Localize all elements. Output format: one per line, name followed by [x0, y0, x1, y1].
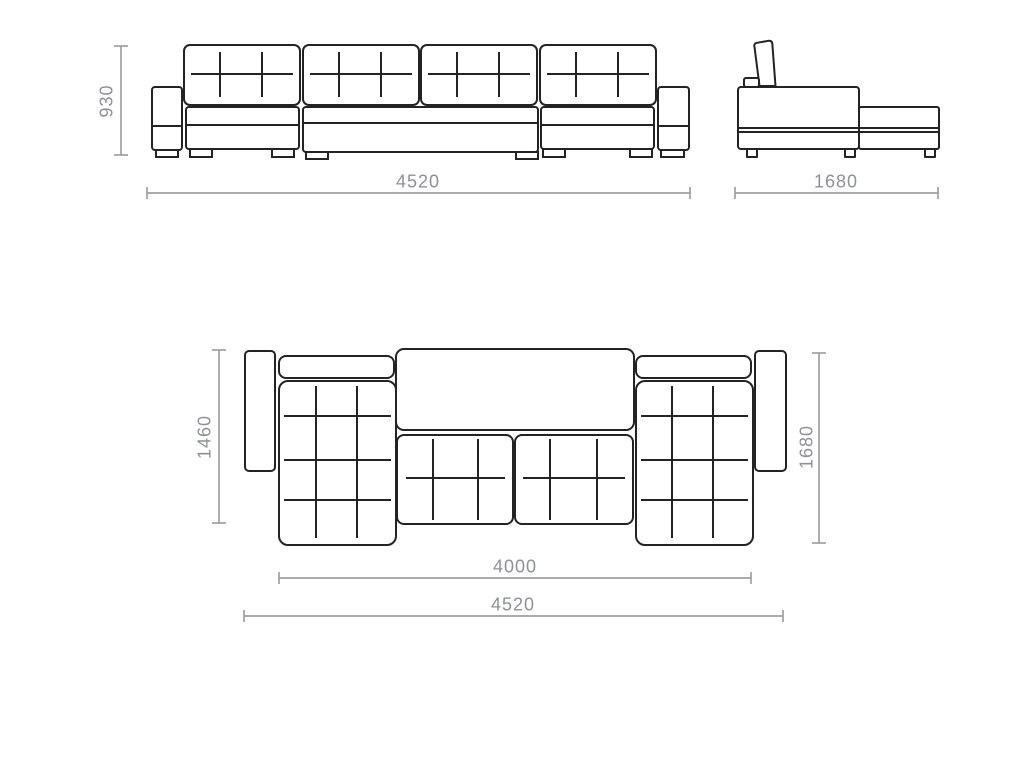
side-body	[738, 87, 859, 149]
front-height-label: 930	[97, 84, 118, 117]
plan-center-backrest	[396, 349, 634, 430]
front-seat-right	[541, 107, 654, 149]
sofa-dimension-diagram: 930 4520 1680 1460 1680 4000 4520	[0, 0, 1024, 768]
plan-depth-label: 1680	[797, 425, 818, 469]
drawing-svg	[0, 0, 1024, 768]
front-view	[152, 45, 689, 159]
front-seat-left	[186, 107, 299, 149]
plan-left-back-cushion	[279, 356, 394, 378]
plan-right-armrest	[755, 351, 786, 471]
plan-overall-width-label: 4520	[491, 595, 535, 616]
plan-view	[245, 349, 786, 545]
plan-right-chaise-cushion	[636, 381, 753, 545]
front-seat-center	[303, 107, 538, 152]
side-view	[738, 41, 939, 157]
plan-chaise-length-label: 1460	[195, 415, 216, 459]
front-left-armrest	[152, 87, 182, 150]
side-depth-label: 1680	[814, 172, 858, 193]
front-right-armrest	[658, 87, 689, 150]
side-armrest	[744, 78, 759, 87]
plan-seat-width-label: 4000	[493, 557, 537, 578]
plan-left-chaise-cushion	[279, 381, 396, 545]
front-width-label: 4520	[396, 172, 440, 193]
plan-right-back-cushion	[636, 356, 751, 378]
plan-left-armrest	[245, 351, 275, 471]
side-feet	[747, 149, 935, 157]
plan-center-seat-cushion-right	[515, 435, 633, 524]
plan-center-seat-cushion-left	[397, 435, 513, 524]
